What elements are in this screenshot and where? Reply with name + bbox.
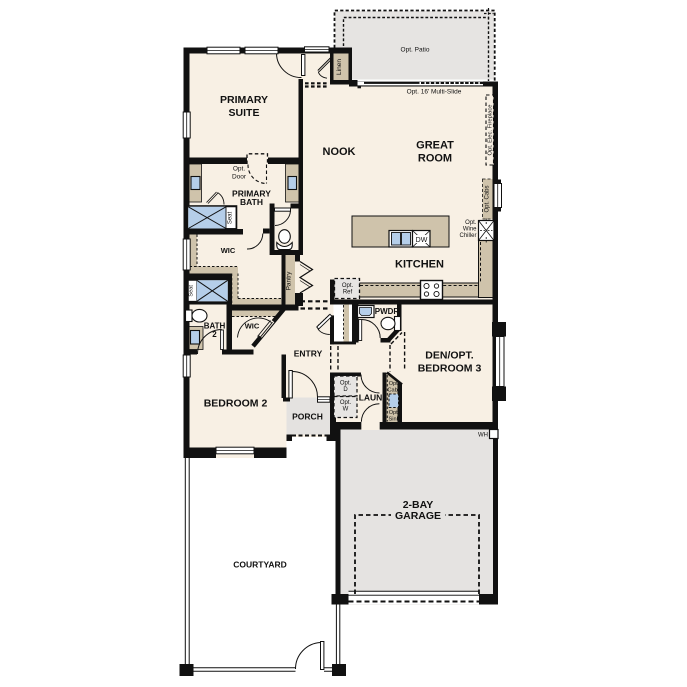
svg-text:LAUN: LAUN bbox=[359, 393, 383, 403]
svg-text:Opt. 16' Multi-Slide: Opt. 16' Multi-Slide bbox=[407, 89, 462, 96]
svg-text:Ref: Ref bbox=[343, 290, 353, 296]
svg-text:Pantry: Pantry bbox=[285, 271, 292, 291]
svg-text:COURTYARD: COURTYARD bbox=[233, 560, 287, 570]
svg-text:W: W bbox=[343, 407, 349, 413]
svg-text:PRIMARY: PRIMARY bbox=[220, 94, 268, 106]
svg-text:NOOK: NOOK bbox=[323, 146, 356, 158]
svg-text:GARAGE: GARAGE bbox=[395, 510, 441, 522]
svg-text:GREAT: GREAT bbox=[416, 140, 454, 152]
svg-text:BEDROOM 2: BEDROOM 2 bbox=[204, 398, 268, 410]
svg-text:DW: DW bbox=[416, 237, 428, 244]
svg-text:Opt. Elec. Fireplace: Opt. Elec. Fireplace bbox=[488, 105, 494, 156]
svg-text:Door: Door bbox=[232, 174, 247, 181]
svg-text:Opt. Cabs: Opt. Cabs bbox=[484, 185, 490, 212]
svg-text:2: 2 bbox=[212, 330, 217, 339]
svg-text:PWDR: PWDR bbox=[375, 307, 400, 316]
svg-text:BEDROOM 3: BEDROOM 3 bbox=[418, 363, 482, 375]
svg-text:PORCH: PORCH bbox=[292, 412, 323, 422]
svg-text:ROOM: ROOM bbox=[418, 153, 452, 165]
svg-text:Sink: Sink bbox=[389, 417, 400, 423]
svg-text:Opt.: Opt. bbox=[389, 410, 400, 416]
svg-text:SUITE: SUITE bbox=[229, 107, 260, 119]
svg-text:ENTRY: ENTRY bbox=[294, 349, 323, 359]
svg-text:Opt.: Opt. bbox=[342, 283, 354, 289]
svg-text:Opt.: Opt. bbox=[389, 381, 400, 387]
svg-text:Opt.: Opt. bbox=[340, 400, 352, 406]
svg-text:Seat: Seat bbox=[227, 211, 233, 224]
svg-text:Seat: Seat bbox=[189, 285, 195, 297]
svg-text:Opt. Patio: Opt. Patio bbox=[401, 47, 430, 54]
svg-text:Wine: Wine bbox=[463, 227, 477, 233]
svg-text:Chiller: Chiller bbox=[459, 233, 476, 239]
svg-text:Opt.: Opt. bbox=[233, 166, 245, 173]
svg-text:KITCHEN: KITCHEN bbox=[395, 259, 444, 271]
svg-text:Cabs: Cabs bbox=[387, 388, 400, 394]
svg-text:DEN/OPT.: DEN/OPT. bbox=[425, 350, 474, 362]
svg-text:Opt.: Opt. bbox=[340, 381, 352, 387]
svg-text:Linen: Linen bbox=[336, 59, 343, 75]
svg-text:WIC: WIC bbox=[221, 246, 236, 255]
svg-text:WIC: WIC bbox=[245, 322, 260, 331]
svg-text:D: D bbox=[343, 387, 348, 393]
svg-text:Opt.: Opt. bbox=[465, 220, 477, 226]
svg-text:WH: WH bbox=[478, 433, 488, 439]
svg-text:BATH: BATH bbox=[240, 197, 263, 207]
